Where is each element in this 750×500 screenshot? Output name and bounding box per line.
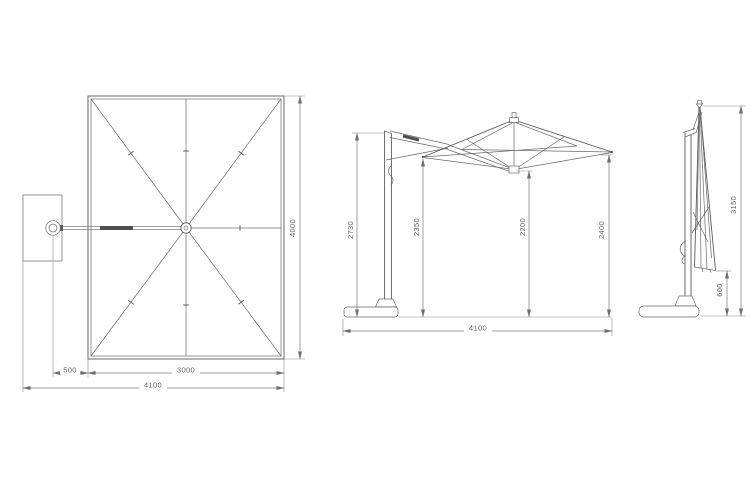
dim-overall-height-label: 3150 (729, 196, 738, 214)
base-plate-side (639, 306, 699, 317)
pole-front (385, 131, 392, 299)
pedestal-front (376, 299, 397, 307)
pole-hinge-top (46, 221, 61, 236)
top-view-dimensions: 4000 500 3000 4100 (23, 96, 305, 392)
finial (512, 113, 516, 118)
dim-pole-offset-label: 500 (63, 366, 76, 375)
center-hub-top (181, 223, 191, 233)
dim-center-clearance-label: 2200 (518, 218, 527, 236)
base-plate-front (344, 307, 398, 317)
lower-hub (509, 166, 519, 173)
pedestal-side (675, 296, 696, 306)
crank-cord (389, 166, 394, 185)
drawing-canvas: 4000 500 3000 4100 (0, 0, 750, 500)
cantilever-arm-front (386, 131, 513, 185)
canopy-front (422, 113, 613, 174)
dim-left-edge-height-label: 2350 (412, 218, 421, 236)
technical-drawing: 4000 500 3000 4100 (0, 0, 750, 500)
dim-canopy-width-label: 3000 (177, 366, 195, 375)
front-view: 2730 2350 2200 2400 4100 (343, 113, 613, 337)
dim-right-edge-height-label: 2400 (597, 221, 606, 239)
dim-pole-height-label: 2730 (346, 221, 355, 239)
finial-side (698, 101, 702, 105)
dim-canopy-depth-label: 4000 (288, 219, 297, 237)
dim-overall-width-front-label: 4100 (469, 324, 487, 333)
dim-overall-width-top-label: 4100 (144, 381, 162, 390)
folded-canopy (692, 101, 716, 273)
dim-stack-clearance-label: 600 (715, 283, 724, 296)
peak-hub (510, 118, 519, 123)
cantilever-arm-top (59, 225, 182, 231)
top-view: 4000 500 3000 4100 (23, 96, 305, 392)
side-view-closed: 3150 600 (639, 101, 746, 318)
